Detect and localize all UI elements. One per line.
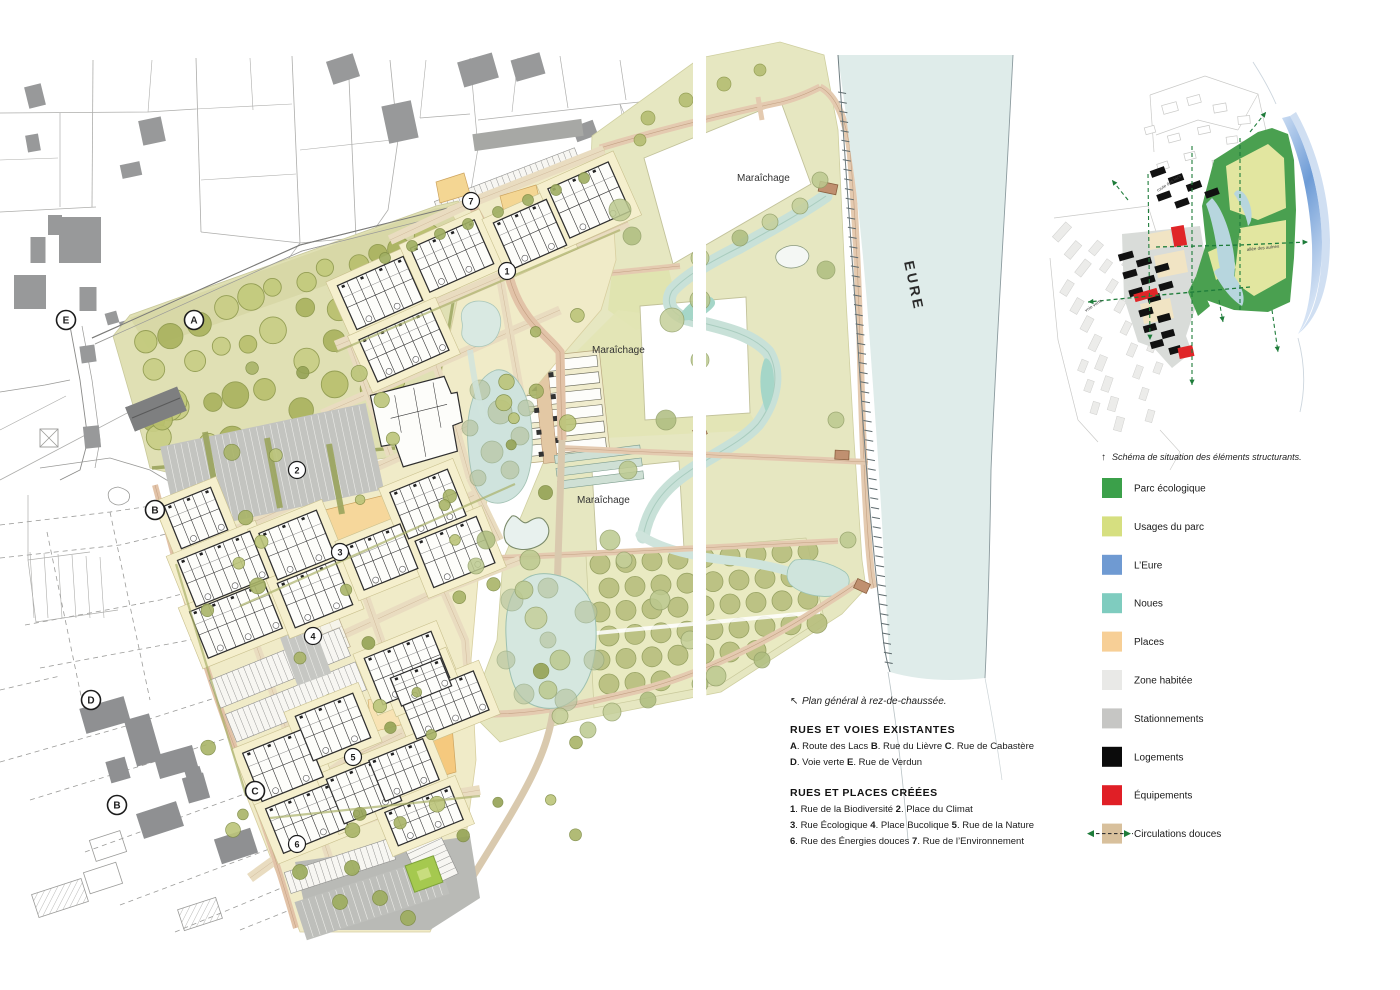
svg-text:2: 2: [294, 466, 299, 476]
svg-text:D. Voie verte E. Rue de Verdu: D. Voie verte E. Rue de Verdun: [790, 757, 922, 768]
svg-text:Zone habitée: Zone habitée: [1134, 676, 1193, 687]
svg-text:↖: ↖: [790, 696, 798, 707]
svg-text:Stationnements: Stationnements: [1134, 714, 1204, 725]
svg-text:A. Route des Lacs B. Rue du L: A. Route des Lacs B. Rue du Lièvre C. Ru…: [790, 741, 1034, 752]
svg-text:6: 6: [294, 840, 299, 850]
svg-text:L’Eure: L’Eure: [1134, 560, 1163, 571]
svg-text:E: E: [63, 316, 70, 327]
svg-text:Usages du parc: Usages du parc: [1134, 522, 1204, 533]
svg-text:A: A: [190, 316, 197, 327]
svg-text:7: 7: [468, 197, 473, 207]
svg-text:Circulations douces: Circulations douces: [1134, 829, 1221, 840]
svg-text:Maraîchage: Maraîchage: [577, 495, 630, 506]
svg-text:1. Rue de la Biodiversité 2.: 1. Rue de la Biodiversité 2. Place du Cl…: [790, 804, 973, 815]
svg-text:B: B: [113, 801, 120, 812]
svg-text:Parc écologique: Parc écologique: [1134, 484, 1206, 495]
svg-text:Noues: Noues: [1134, 599, 1163, 610]
svg-text:B: B: [151, 506, 158, 517]
svg-text:Logements: Logements: [1134, 752, 1183, 763]
svg-text:C: C: [251, 787, 258, 798]
svg-text:↑: ↑: [1101, 452, 1106, 463]
svg-text:3. Rue Écologique 4. Place Bu: 3. Rue Écologique 4. Place Bucolique 5. …: [790, 820, 1034, 831]
svg-text:Plan général à rez-de-chaussée: Plan général à rez-de-chaussée.: [802, 696, 947, 707]
svg-text:3: 3: [337, 548, 342, 558]
svg-text:6. Rue des Énergies douces 7.: 6. Rue des Énergies douces 7. Rue de l’E…: [790, 836, 1024, 847]
svg-text:Maraîchage: Maraîchage: [592, 345, 645, 356]
svg-text:Maraîchage: Maraîchage: [737, 173, 790, 184]
svg-text:RUES ET VOIES EXISTANTES: RUES ET VOIES EXISTANTES: [790, 724, 955, 736]
svg-text:RUES ET PLACES CRÉÉES: RUES ET PLACES CRÉÉES: [790, 786, 938, 799]
svg-text:1: 1: [504, 267, 509, 277]
svg-text:Places: Places: [1134, 637, 1164, 648]
svg-text:4: 4: [310, 632, 315, 642]
svg-text:D: D: [87, 696, 94, 707]
svg-text:Équipements: Équipements: [1134, 789, 1192, 802]
svg-text:Schéma de situation des élémen: Schéma de situation des éléments structu…: [1112, 452, 1302, 462]
svg-text:5: 5: [350, 753, 355, 763]
